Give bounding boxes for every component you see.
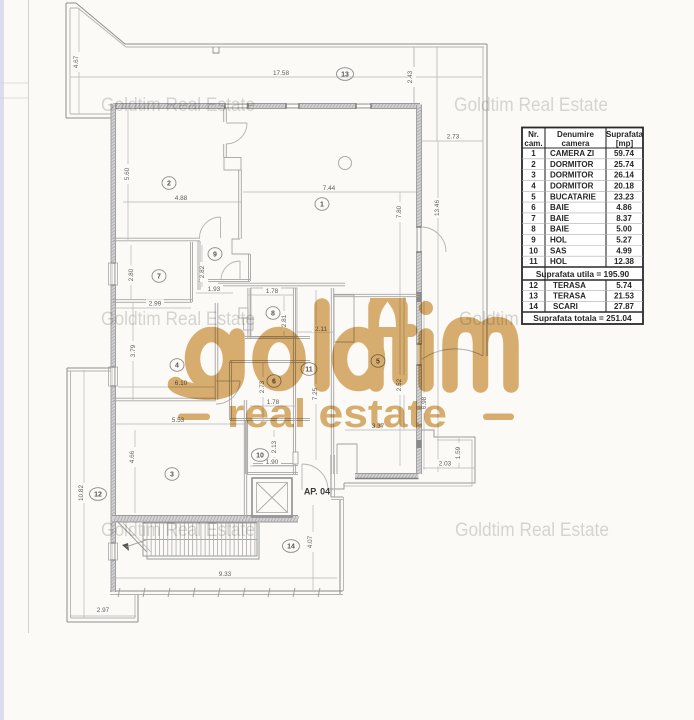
svg-text:1.59: 1.59: [455, 446, 462, 459]
svg-text:10: 10: [256, 453, 264, 460]
svg-text:17.58: 17.58: [273, 70, 289, 77]
svg-text:11: 11: [529, 257, 538, 266]
svg-text:13.46: 13.46: [434, 200, 441, 216]
svg-text:Goldtim Real Estate: Goldtim Real Estate: [454, 94, 608, 116]
svg-text:1.78: 1.78: [266, 288, 279, 295]
svg-text:12.38: 12.38: [614, 257, 635, 266]
svg-text:21.53: 21.53: [614, 292, 635, 301]
svg-text:DORMITOR: DORMITOR: [550, 160, 594, 169]
svg-text:4: 4: [175, 363, 179, 370]
svg-text:1.93: 1.93: [208, 286, 221, 293]
svg-text:4.99: 4.99: [616, 246, 632, 255]
svg-text:1: 1: [531, 149, 536, 158]
svg-text:1: 1: [320, 202, 324, 209]
svg-text:2.03: 2.03: [439, 461, 452, 468]
svg-text:BAIE: BAIE: [550, 225, 570, 234]
svg-text:9: 9: [531, 236, 536, 245]
svg-text:12: 12: [94, 492, 102, 499]
svg-text:real estate: real estate: [227, 392, 447, 436]
svg-text:3: 3: [531, 171, 536, 180]
svg-text:BAIE: BAIE: [550, 214, 570, 223]
svg-text:BAIE: BAIE: [550, 203, 570, 212]
svg-text:7.44: 7.44: [323, 185, 336, 192]
svg-text:camera: camera: [561, 139, 590, 148]
svg-text:Goldtim Real Estate: Goldtim Real Estate: [101, 308, 255, 330]
svg-text:2.80: 2.80: [128, 268, 135, 281]
svg-text:2.43: 2.43: [407, 70, 414, 83]
svg-text:TERASA: TERASA: [553, 281, 586, 290]
svg-text:10.82: 10.82: [78, 485, 85, 501]
svg-text:5.60: 5.60: [124, 167, 131, 180]
svg-text:5.74: 5.74: [616, 281, 632, 290]
svg-text:DORMITOR: DORMITOR: [550, 171, 594, 180]
svg-text:27.87: 27.87: [614, 302, 635, 311]
svg-text:8: 8: [531, 225, 536, 234]
svg-text:4.07: 4.07: [307, 535, 314, 548]
svg-text:Denumire: Denumire: [557, 130, 594, 139]
svg-text:5: 5: [531, 192, 536, 201]
svg-text:8.37: 8.37: [616, 214, 632, 223]
svg-text:3: 3: [170, 472, 174, 479]
svg-text:2.97: 2.97: [97, 607, 110, 614]
svg-text:Suprafata utila = 195.90: Suprafata utila = 195.90: [536, 269, 630, 279]
svg-text:7: 7: [157, 274, 161, 281]
svg-text:2.81: 2.81: [281, 314, 288, 327]
svg-text:SAS: SAS: [550, 246, 567, 255]
svg-text:CAMERA ZI: CAMERA ZI: [550, 149, 594, 158]
svg-text:Suprafata totala = 251.04: Suprafata totala = 251.04: [533, 313, 632, 323]
svg-text:1.90: 1.90: [266, 459, 279, 466]
svg-text:2: 2: [531, 160, 536, 169]
svg-text:13: 13: [341, 72, 349, 79]
svg-text:HOL: HOL: [550, 236, 567, 245]
svg-text:Goldtim Real Estate: Goldtim Real Estate: [101, 519, 255, 541]
svg-text:10: 10: [529, 246, 538, 255]
svg-text:4.88: 4.88: [175, 195, 188, 202]
svg-text:8: 8: [271, 311, 275, 318]
svg-text:11: 11: [305, 367, 313, 374]
svg-text:2.73: 2.73: [447, 134, 460, 141]
svg-text:SCARI: SCARI: [553, 302, 578, 311]
svg-text:7: 7: [531, 214, 536, 223]
svg-text:6: 6: [531, 203, 536, 212]
svg-text:14: 14: [287, 544, 295, 551]
svg-text:2: 2: [167, 181, 171, 188]
svg-text:AP. 04: AP. 04: [304, 487, 330, 497]
svg-text:4: 4: [531, 181, 536, 190]
svg-text:4.86: 4.86: [616, 203, 632, 212]
svg-text:3.79: 3.79: [130, 344, 137, 357]
svg-text:2.99: 2.99: [149, 301, 162, 308]
svg-text:5.00: 5.00: [616, 225, 632, 234]
svg-text:TERASA: TERASA: [553, 292, 586, 301]
svg-text:2.82: 2.82: [199, 265, 206, 278]
svg-text:12: 12: [529, 281, 538, 290]
svg-text:4.66: 4.66: [129, 450, 136, 463]
svg-text:13: 13: [529, 292, 538, 301]
svg-text:Nr.: Nr.: [528, 130, 539, 139]
svg-text:Suprafata: Suprafata: [606, 130, 643, 139]
svg-text:7.80: 7.80: [396, 205, 403, 218]
svg-text:HOL: HOL: [550, 257, 567, 266]
svg-text:9.33: 9.33: [219, 571, 232, 578]
svg-text:9: 9: [213, 252, 217, 259]
svg-text:5.27: 5.27: [616, 236, 632, 245]
svg-text:26.14: 26.14: [614, 171, 635, 180]
svg-text:Goldtim Real Estate: Goldtim Real Estate: [455, 519, 609, 541]
svg-text:Goldtim Real Estate: Goldtim Real Estate: [101, 94, 255, 116]
svg-text:20.18: 20.18: [614, 181, 635, 190]
svg-text:23.23: 23.23: [614, 192, 635, 201]
svg-text:59.74: 59.74: [614, 149, 635, 158]
svg-text:25.74: 25.74: [614, 160, 635, 169]
svg-text:14: 14: [529, 302, 538, 311]
svg-text:[mp]: [mp]: [616, 139, 634, 148]
svg-text:DORMITOR: DORMITOR: [550, 181, 594, 190]
svg-text:2.13: 2.13: [271, 440, 278, 453]
svg-text:4.67: 4.67: [73, 55, 80, 68]
svg-text:BUCATARIE: BUCATARIE: [550, 192, 597, 201]
svg-text:cam.: cam.: [524, 139, 542, 148]
